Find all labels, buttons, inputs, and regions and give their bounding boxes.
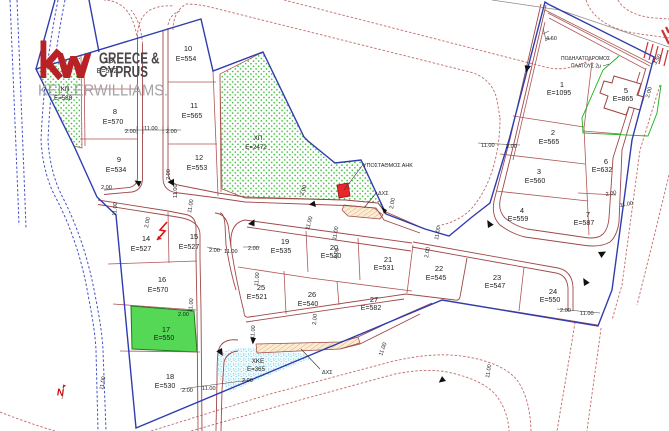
svg-text:3: 3 (537, 167, 541, 176)
svg-text:10: 10 (184, 44, 192, 53)
svg-text:26: 26 (308, 290, 316, 299)
svg-text:Ε=365: Ε=365 (247, 366, 266, 373)
svg-text:Ε=582: Ε=582 (361, 305, 382, 312)
svg-text:2.00: 2.00 (312, 314, 319, 325)
svg-text:2.00: 2.00 (182, 388, 193, 394)
svg-text:Ε=865: Ε=865 (613, 96, 634, 103)
svg-text:ΠΟΔΗΛΑΤΟΔΡΟΜΟΣ: ΠΟΔΗΛΑΤΟΔΡΟΜΟΣ (561, 56, 610, 62)
svg-text:12: 12 (195, 153, 203, 162)
svg-text:22: 22 (435, 264, 443, 273)
svg-text:2.00: 2.00 (209, 248, 220, 254)
svg-text:Ε=587: Ε=587 (574, 220, 595, 227)
svg-text:4.60: 4.60 (546, 36, 557, 42)
svg-text:11.00: 11.00 (224, 249, 238, 255)
svg-text:18: 18 (166, 372, 174, 381)
svg-text:Ε=559: Ε=559 (508, 216, 529, 223)
svg-text:23: 23 (493, 273, 501, 282)
svg-text:Ε=1095: Ε=1095 (547, 90, 571, 97)
svg-text:11.00: 11.00 (250, 325, 257, 339)
svg-text:Ε=527: Ε=527 (179, 244, 200, 251)
svg-text:11.00: 11.00 (144, 126, 158, 132)
svg-text:21: 21 (384, 255, 392, 264)
svg-text:1: 1 (560, 80, 564, 89)
svg-text:Ε=554: Ε=554 (176, 56, 197, 63)
svg-text:14: 14 (142, 234, 150, 243)
svg-text:ΧΠ: ΧΠ (254, 135, 263, 142)
svg-text:Ε=521: Ε=521 (247, 294, 268, 301)
svg-text:17: 17 (162, 325, 170, 334)
svg-text:2.00: 2.00 (101, 185, 112, 191)
svg-text:ΥΠΟΣΤΑΘΜΟΣ ΑΗΚ: ΥΠΟΣΤΑΘΜΟΣ ΑΗΚ (363, 163, 413, 169)
svg-text:9: 9 (117, 155, 121, 164)
svg-text:Ε=535: Ε=535 (271, 248, 292, 255)
svg-text:7: 7 (586, 210, 590, 219)
svg-text:2.00: 2.00 (178, 312, 189, 318)
svg-text:6: 6 (604, 157, 608, 166)
svg-text:CYPRUS: CYPRUS (99, 64, 148, 81)
svg-text:Ε=534: Ε=534 (106, 167, 127, 174)
svg-text:Ε=565: Ε=565 (182, 113, 203, 120)
svg-text:2.00: 2.00 (560, 308, 571, 314)
svg-text:Ε=531: Ε=531 (374, 265, 395, 272)
svg-text:19: 19 (281, 237, 289, 246)
svg-text:2: 2 (551, 128, 555, 137)
svg-text:11.00: 11.00 (202, 386, 216, 392)
svg-text:ΧΚΕ: ΧΚΕ (252, 358, 264, 365)
svg-text:Ε=545: Ε=545 (426, 275, 447, 282)
svg-text:11.00: 11.00 (188, 298, 195, 312)
svg-text:Ε=547: Ε=547 (485, 283, 506, 290)
svg-text:ΔΧΣ: ΔΧΣ (322, 370, 333, 376)
svg-text:11.00: 11.00 (173, 184, 179, 198)
svg-text:24: 24 (549, 287, 557, 296)
svg-text:Ε=540: Ε=540 (298, 301, 319, 308)
svg-text:11.00: 11.00 (112, 202, 119, 216)
svg-text:15: 15 (190, 232, 198, 241)
svg-text:Ε=550: Ε=550 (154, 335, 175, 342)
svg-text:Ε=530: Ε=530 (155, 383, 176, 390)
svg-text:16: 16 (158, 275, 166, 284)
svg-text:ΠΛΑΤΟΥΣ 2μ: ΠΛΑΤΟΥΣ 2μ (571, 64, 601, 70)
svg-text:Ε=2472: Ε=2472 (245, 144, 267, 151)
svg-text:N: N (56, 387, 65, 399)
svg-text:Ε=553: Ε=553 (187, 165, 208, 172)
svg-text:Ε=565: Ε=565 (539, 139, 560, 146)
svg-text:11: 11 (190, 101, 198, 110)
svg-text:KELLERWILLIAMS.: KELLERWILLIAMS. (38, 83, 168, 100)
svg-text:Ε=570: Ε=570 (103, 119, 124, 126)
svg-text:Ε=550: Ε=550 (540, 297, 561, 304)
svg-text:4: 4 (520, 206, 524, 215)
svg-text:Ε=527: Ε=527 (131, 246, 152, 253)
svg-text:27: 27 (370, 295, 378, 304)
svg-text:Ε=570: Ε=570 (148, 287, 169, 294)
svg-text:11.00: 11.00 (254, 272, 261, 286)
svg-text:ΔΧΣ: ΔΧΣ (378, 191, 389, 197)
svg-text:8: 8 (113, 107, 117, 116)
svg-text:Ε=632: Ε=632 (592, 167, 613, 174)
svg-text:5: 5 (624, 86, 628, 95)
svg-text:2.00: 2.00 (166, 169, 172, 180)
svg-text:Ε=560: Ε=560 (525, 178, 546, 185)
